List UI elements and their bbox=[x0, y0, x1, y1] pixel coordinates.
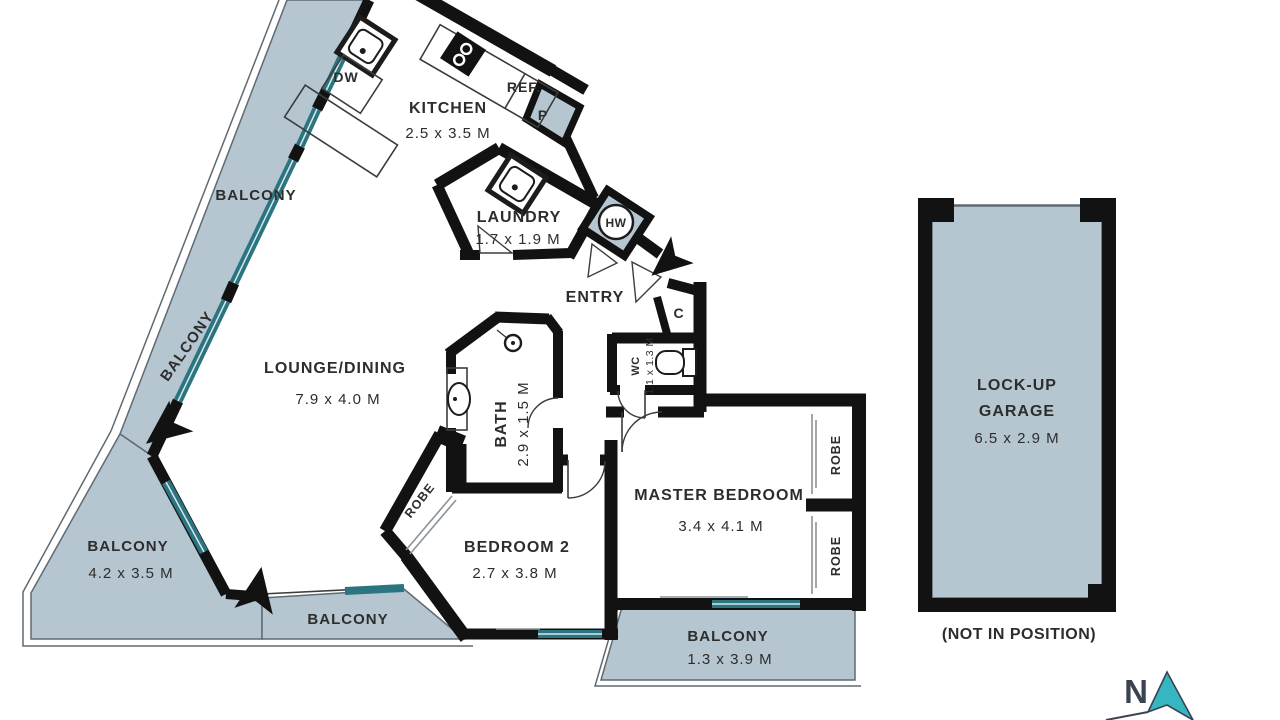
garage-label-line1: LOCK-UP bbox=[977, 377, 1057, 394]
garage-note: (NOT IN POSITION) bbox=[942, 626, 1096, 643]
balcony-triangle-sw bbox=[31, 434, 262, 639]
bath-dims: 2.9 x 1.5 M bbox=[515, 381, 532, 466]
laundry-label: LAUNDRY bbox=[477, 209, 562, 226]
robe-label: ROBE bbox=[829, 536, 843, 576]
shower bbox=[497, 330, 521, 351]
bedroom2-label: BEDROOM 2 bbox=[464, 539, 570, 556]
balcony-se-dims: 1.3 x 3.9 M bbox=[687, 651, 772, 668]
toilet bbox=[656, 349, 696, 376]
floorplan-drawing: N KITCHEN 2.5 x 3.5 M LAUNDRY 1.7 x 1.9 … bbox=[0, 0, 1280, 720]
garage-floor bbox=[932, 205, 1102, 598]
lounge-label: LOUNGE/DINING bbox=[264, 360, 406, 377]
wc-label: WC bbox=[630, 356, 642, 375]
master-bedroom-dims: 3.4 x 4.1 M bbox=[678, 518, 763, 535]
garage-label-line2: GARAGE bbox=[979, 403, 1055, 420]
balcony-se-label: BALCONY bbox=[687, 628, 768, 645]
bedroom2-dims: 2.7 x 3.8 M bbox=[472, 565, 557, 582]
north-arrow-icon bbox=[1148, 672, 1193, 720]
entry-label: ENTRY bbox=[566, 289, 625, 306]
kitchen-label: KITCHEN bbox=[409, 100, 487, 117]
balcony-sw-dims: 4.2 x 3.5 M bbox=[88, 565, 173, 582]
wc-dims: 1.1 x 1.3 M bbox=[644, 337, 656, 394]
pantry-label: P bbox=[538, 107, 548, 123]
bath-door bbox=[528, 398, 558, 428]
balcony-sw-label: BALCONY bbox=[87, 538, 168, 555]
lounge-dims: 7.9 x 4.0 M bbox=[295, 391, 380, 408]
balcony-middle-label: BALCONY bbox=[307, 611, 388, 628]
balcony-nw-label: BALCONY bbox=[215, 187, 296, 204]
bath-label: BATH bbox=[493, 400, 510, 447]
garage-dims: 6.5 x 2.9 M bbox=[974, 430, 1059, 447]
laundry-dims: 1.7 x 1.9 M bbox=[475, 231, 560, 248]
balcony-strip-nw bbox=[120, 0, 369, 456]
floorplan-page: N KITCHEN 2.5 x 3.5 M LAUNDRY 1.7 x 1.9 … bbox=[0, 0, 1280, 720]
cupboard-label: C bbox=[673, 305, 684, 321]
robe-label: ROBE bbox=[829, 435, 843, 475]
fridge-label: REF. bbox=[507, 79, 541, 95]
north-letter: N bbox=[1124, 673, 1148, 710]
bath-basin bbox=[447, 368, 470, 430]
compass: N bbox=[1106, 672, 1193, 720]
master-bedroom-label: MASTER BEDROOM bbox=[634, 487, 804, 504]
cooktop bbox=[440, 31, 486, 76]
kitchen-dims: 2.5 x 3.5 M bbox=[405, 125, 490, 142]
dishwasher-label: DW bbox=[333, 69, 358, 85]
bedroom2-door bbox=[568, 460, 605, 498]
hot-water-label: HW bbox=[606, 216, 627, 230]
